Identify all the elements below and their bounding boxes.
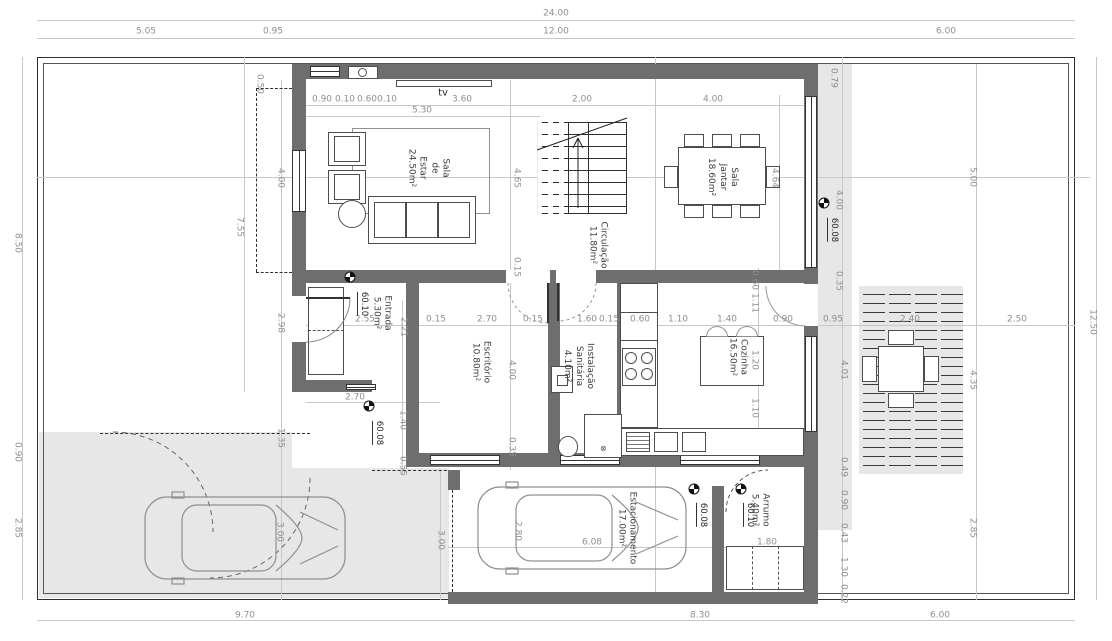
sofa-seat xyxy=(406,202,438,238)
dim-line xyxy=(296,105,818,106)
dimension-label: 4.00 xyxy=(703,96,723,105)
window xyxy=(310,66,340,77)
armchair-cushion xyxy=(334,174,360,200)
armchair-cushion xyxy=(334,136,360,162)
dimension-label: 24.00 xyxy=(543,10,569,19)
coffee-table xyxy=(338,200,366,228)
wall xyxy=(804,470,818,598)
dimension-label: 9.70 xyxy=(235,612,255,621)
level-marker-icon xyxy=(736,484,747,495)
dining-chair xyxy=(712,134,732,147)
burner xyxy=(625,368,637,380)
dimension-label: 0.50 xyxy=(255,74,264,94)
dining-chair xyxy=(664,166,678,188)
dimension-label: 0.35 xyxy=(834,271,843,291)
dimension-label: 0.15 xyxy=(512,257,521,277)
outdoor-chair xyxy=(888,330,914,345)
wall xyxy=(306,270,804,283)
dimension-label: 5.00 xyxy=(968,167,977,187)
tv-unit xyxy=(396,80,492,87)
dimension-label: 1.60 xyxy=(577,316,597,325)
burner xyxy=(641,368,653,380)
room-label: Estacionamento 17.00m² xyxy=(615,492,638,565)
dining-chair xyxy=(740,134,760,147)
staircase-dashed-upper-flight xyxy=(537,122,569,214)
dimension-label: 0.55 xyxy=(398,456,407,476)
dining-chair xyxy=(684,205,704,218)
dim-line xyxy=(37,620,1075,621)
dimension-label: 0.15 xyxy=(426,316,446,325)
dimension-label: 0.60 xyxy=(357,96,377,105)
dimension-label: 1.35 xyxy=(276,428,285,448)
door-opening xyxy=(556,270,596,283)
dimension-label: 0.60 xyxy=(750,270,759,290)
dimension-label: 12.00 xyxy=(543,28,569,37)
outdoor-chair xyxy=(862,356,877,382)
stove-flue xyxy=(358,68,367,77)
level-marker-icon xyxy=(345,272,356,283)
dimension-label: 8.30 xyxy=(690,612,710,621)
dimension-label: 7.55 xyxy=(235,217,244,237)
wall xyxy=(448,470,460,490)
dimension-label: 0.90 xyxy=(839,490,848,510)
room-label: Escritório 10.80m² xyxy=(469,341,492,383)
dimension-label: 8.50 xyxy=(13,233,22,253)
stair-rail xyxy=(568,122,569,214)
sliding-door xyxy=(346,384,376,390)
level-value-label: 60.08 xyxy=(372,421,384,445)
window-glazing xyxy=(805,336,817,432)
window-glazing xyxy=(805,96,817,268)
outdoor-chair xyxy=(888,393,914,408)
dimension-label: 0.15 xyxy=(523,316,543,325)
window xyxy=(430,455,500,465)
dimension-label: 4.00 xyxy=(276,168,285,188)
dimension-label: 0.79 xyxy=(829,68,838,88)
dimension-label: 2.40 xyxy=(900,316,920,325)
dining-chair xyxy=(712,205,732,218)
dimension-label: 4.64 xyxy=(770,168,779,188)
shelf-divider xyxy=(752,546,753,590)
dimension-label: 0.95 xyxy=(263,28,283,37)
dimension-label: 1.11 xyxy=(750,293,759,313)
dimension-label: 1.10 xyxy=(668,316,688,325)
door-opening xyxy=(292,296,306,342)
dimension-label: 0.95 xyxy=(823,316,843,325)
dimension-label: 4.00 xyxy=(834,190,843,210)
sofa-seat xyxy=(438,202,470,238)
dimension-label: 5.05 xyxy=(136,28,156,37)
dimension-label: 0.90 xyxy=(312,96,332,105)
room-label: Entrada 5.30m² xyxy=(370,295,393,330)
dimension-label: 12.50 xyxy=(1088,309,1097,335)
dimension-label: 0.35 xyxy=(507,437,516,457)
sink-bowl xyxy=(654,432,678,452)
room-label: Instalação Sanitária 4.10m² xyxy=(561,343,595,389)
wall xyxy=(406,283,419,456)
outdoor-table xyxy=(878,346,924,392)
level-marker-icon xyxy=(819,198,830,209)
toilet xyxy=(558,436,578,457)
dimension-label: 2.85 xyxy=(13,518,22,538)
burner xyxy=(625,352,637,364)
level-marker-icon xyxy=(364,401,375,412)
dimension-label: 6.08 xyxy=(582,539,602,548)
dimension-label: 1.40 xyxy=(717,316,737,325)
dimension-label: 1.30 xyxy=(839,557,848,577)
dimension-label: 4.35 xyxy=(968,370,977,390)
dimension-label: 1.20 xyxy=(750,350,759,370)
dimension-label: 4.01 xyxy=(839,360,848,380)
dimension-label: 0.15 xyxy=(599,316,619,325)
sofa-seat xyxy=(374,202,406,238)
dimension-label: 2.98 xyxy=(276,313,285,333)
dimension-label: 0.90 xyxy=(773,316,793,325)
dimension-label: 2.50 xyxy=(1007,316,1027,325)
dimension-label: 4.65 xyxy=(512,168,521,188)
dimension-label: 0.90 xyxy=(13,442,22,462)
dimension-label: 0.43 xyxy=(839,523,848,543)
level-value-label: 60.10 xyxy=(357,292,369,316)
shower-drain-icon: ⊗ xyxy=(600,444,607,453)
dim-line xyxy=(842,57,843,600)
door-opening xyxy=(804,284,818,326)
room-label: Circulação 11.80m² xyxy=(586,222,609,269)
dimension-label: 4.00 xyxy=(507,360,516,380)
level-value-label: 60.10 xyxy=(743,503,755,527)
room-label: Sala Jantar 18.60m² xyxy=(705,158,739,196)
sink-drainer xyxy=(626,432,650,452)
wardrobe xyxy=(308,287,344,375)
dim-line xyxy=(37,38,1075,39)
dimension-label: 0.10 xyxy=(377,96,397,105)
wall xyxy=(712,486,724,592)
dining-chair xyxy=(684,134,704,147)
cabinet-divider xyxy=(620,340,658,341)
wall xyxy=(448,592,818,604)
outdoor-chair xyxy=(924,356,939,382)
dimension-label: 3.00 xyxy=(275,522,284,542)
porch-edge-dashed xyxy=(372,470,452,471)
dimension-label: 1.80 xyxy=(757,539,777,548)
storage-shelves xyxy=(726,546,804,590)
dimension-label: 0.49 xyxy=(839,457,848,477)
dimension-label: 1.10 xyxy=(750,398,759,418)
dimension-label: 2.80 xyxy=(513,521,522,541)
dimension-label: 1.40 xyxy=(398,410,407,430)
dimension-label: 6.00 xyxy=(936,28,956,37)
dining-chair xyxy=(740,205,760,218)
dimension-label: 0.22 xyxy=(839,584,848,604)
cabinet-divider xyxy=(620,312,658,313)
dimension-label: 0.60 xyxy=(630,316,650,325)
stair-rail xyxy=(588,122,589,214)
level-marker-icon xyxy=(689,484,700,495)
dimension-label: 3.00 xyxy=(436,530,445,550)
roof-overhang-dashed xyxy=(256,272,292,273)
dimension-label: 2.00 xyxy=(572,96,592,105)
room-label: Cozinha 16.50m² xyxy=(726,338,749,376)
room-label: Sala de Estar 24.50m² xyxy=(406,149,451,187)
dim-line xyxy=(37,20,1075,21)
window xyxy=(680,455,760,465)
dimension-label: 2.70 xyxy=(477,316,497,325)
sink-bowl xyxy=(682,432,706,452)
dimension-label: 0.10 xyxy=(335,96,355,105)
burner xyxy=(641,352,653,364)
shelf-divider xyxy=(778,546,779,590)
dimension-label: 2.21 xyxy=(399,317,408,337)
level-value-label: 60.08 xyxy=(827,218,839,242)
floor-plan: tv ⊗ xyxy=(0,0,1112,641)
wardrobe-divider xyxy=(308,330,344,331)
dim-line xyxy=(296,116,540,117)
dimension-label: 6.00 xyxy=(930,612,950,621)
roof-overhang-dashed xyxy=(256,88,257,272)
window xyxy=(292,150,306,212)
dimension-label: 2.70 xyxy=(345,394,365,403)
dimension-label: 3.60 xyxy=(452,96,472,105)
dimension-label: 2.85 xyxy=(968,518,977,538)
tv-label: tv xyxy=(438,88,448,99)
dimension-label: 5.30 xyxy=(412,107,432,116)
level-value-label: 60.08 xyxy=(696,503,708,527)
